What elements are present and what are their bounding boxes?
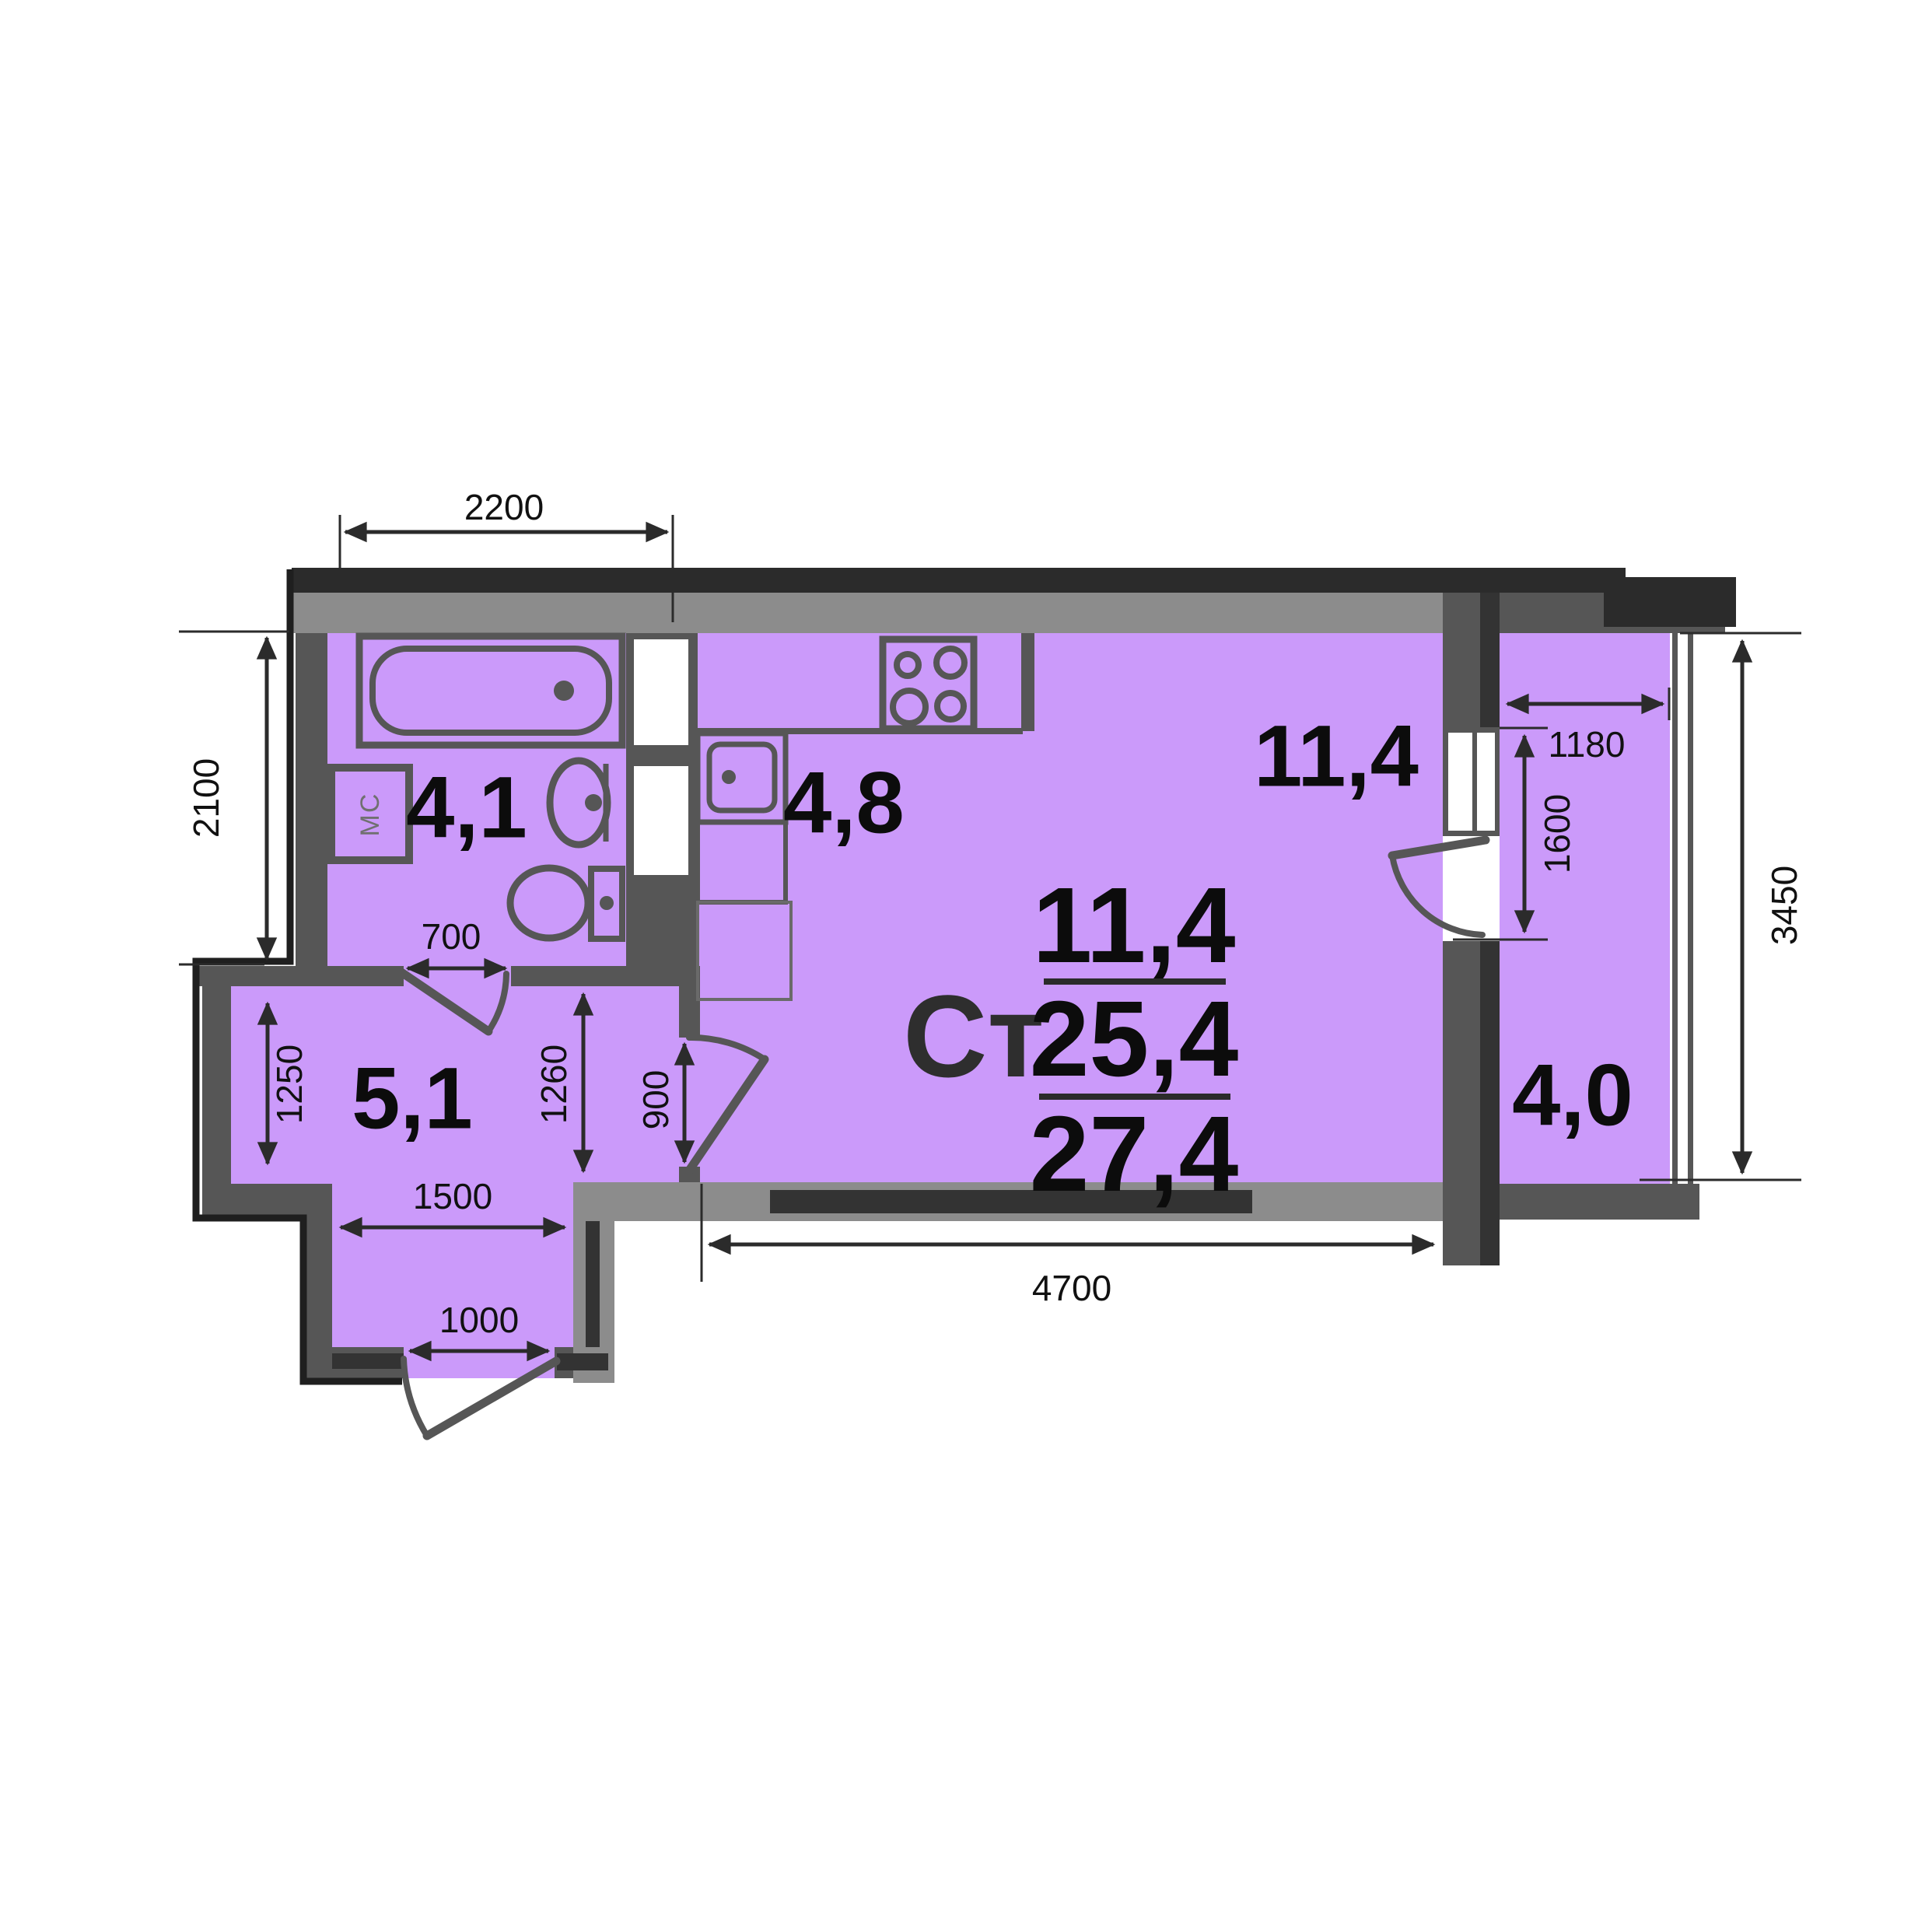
- wall-bath-bottom-right: [511, 966, 700, 986]
- vent-shaft-lower: [634, 766, 688, 875]
- summary-total-area: 27,4: [1030, 1094, 1239, 1214]
- dim-1500-label: 1500: [413, 1176, 492, 1216]
- dim-3450-label: 3450: [1764, 866, 1804, 945]
- washbasin-faucet: [585, 794, 602, 811]
- balcony-glazing-outer: [1672, 627, 1678, 1184]
- label-kitchen-area: 4,8: [783, 754, 905, 852]
- kitchen-sink-faucet: [722, 770, 736, 784]
- wall-hall-left: [202, 966, 231, 1215]
- balcony-window-sash-left: [1448, 733, 1472, 831]
- room-door-gap: [679, 1038, 700, 1167]
- dim-700-label: 700: [422, 916, 481, 957]
- washing-machine-label: МС: [355, 793, 385, 837]
- apartment-type-label: Ст: [903, 971, 1045, 1101]
- stripe-vestibule-right: [586, 1221, 600, 1347]
- summary-apartment-area: 25,4: [1030, 979, 1239, 1099]
- stripe-vestibule-bottom-left: [332, 1353, 404, 1369]
- stripe-vestibule-bottom-right: [557, 1353, 608, 1370]
- label-bathroom-area: 4,1: [406, 759, 527, 856]
- floorplan-page: МС: [0, 0, 1932, 1932]
- dim-1600-label: 1600: [1537, 794, 1577, 873]
- bathtub-drain: [554, 681, 574, 701]
- wall-top-lining: [292, 593, 1445, 633]
- summary-living-area: 11,4: [1033, 866, 1236, 985]
- dim-1250-label: 1250: [269, 1045, 310, 1124]
- label-living-area: 11,4: [1254, 708, 1419, 805]
- balcony-glazing-inner: [1688, 627, 1693, 1184]
- vent-shaft-upper: [634, 639, 688, 745]
- wall-bathroom-left: [296, 633, 327, 986]
- balcony-window-sash-right: [1477, 733, 1495, 831]
- wall-hall-bottom: [202, 1184, 332, 1215]
- dim-2100-label: 2100: [186, 758, 226, 838]
- dim-2200-label: 2200: [464, 487, 544, 527]
- dim-900-label: 900: [635, 1070, 676, 1130]
- wall-kitchen-stub: [1021, 633, 1034, 731]
- wall-balcony-top-black: [1604, 577, 1736, 627]
- wall-top-black: [292, 568, 1626, 593]
- toilet-button: [600, 896, 614, 910]
- dim-1000-label: 1000: [439, 1300, 519, 1340]
- floorplan-svg: МС: [0, 0, 1932, 1932]
- label-balcony-area: 4,0: [1512, 1047, 1633, 1144]
- wall-balcony-bottom: [1472, 1184, 1699, 1220]
- dim-1180-label: 1180: [1549, 724, 1626, 765]
- dim-4700-label: 4700: [1032, 1268, 1111, 1308]
- label-hall-area: 5,1: [352, 1050, 473, 1147]
- dim-1260-label: 1260: [534, 1045, 574, 1124]
